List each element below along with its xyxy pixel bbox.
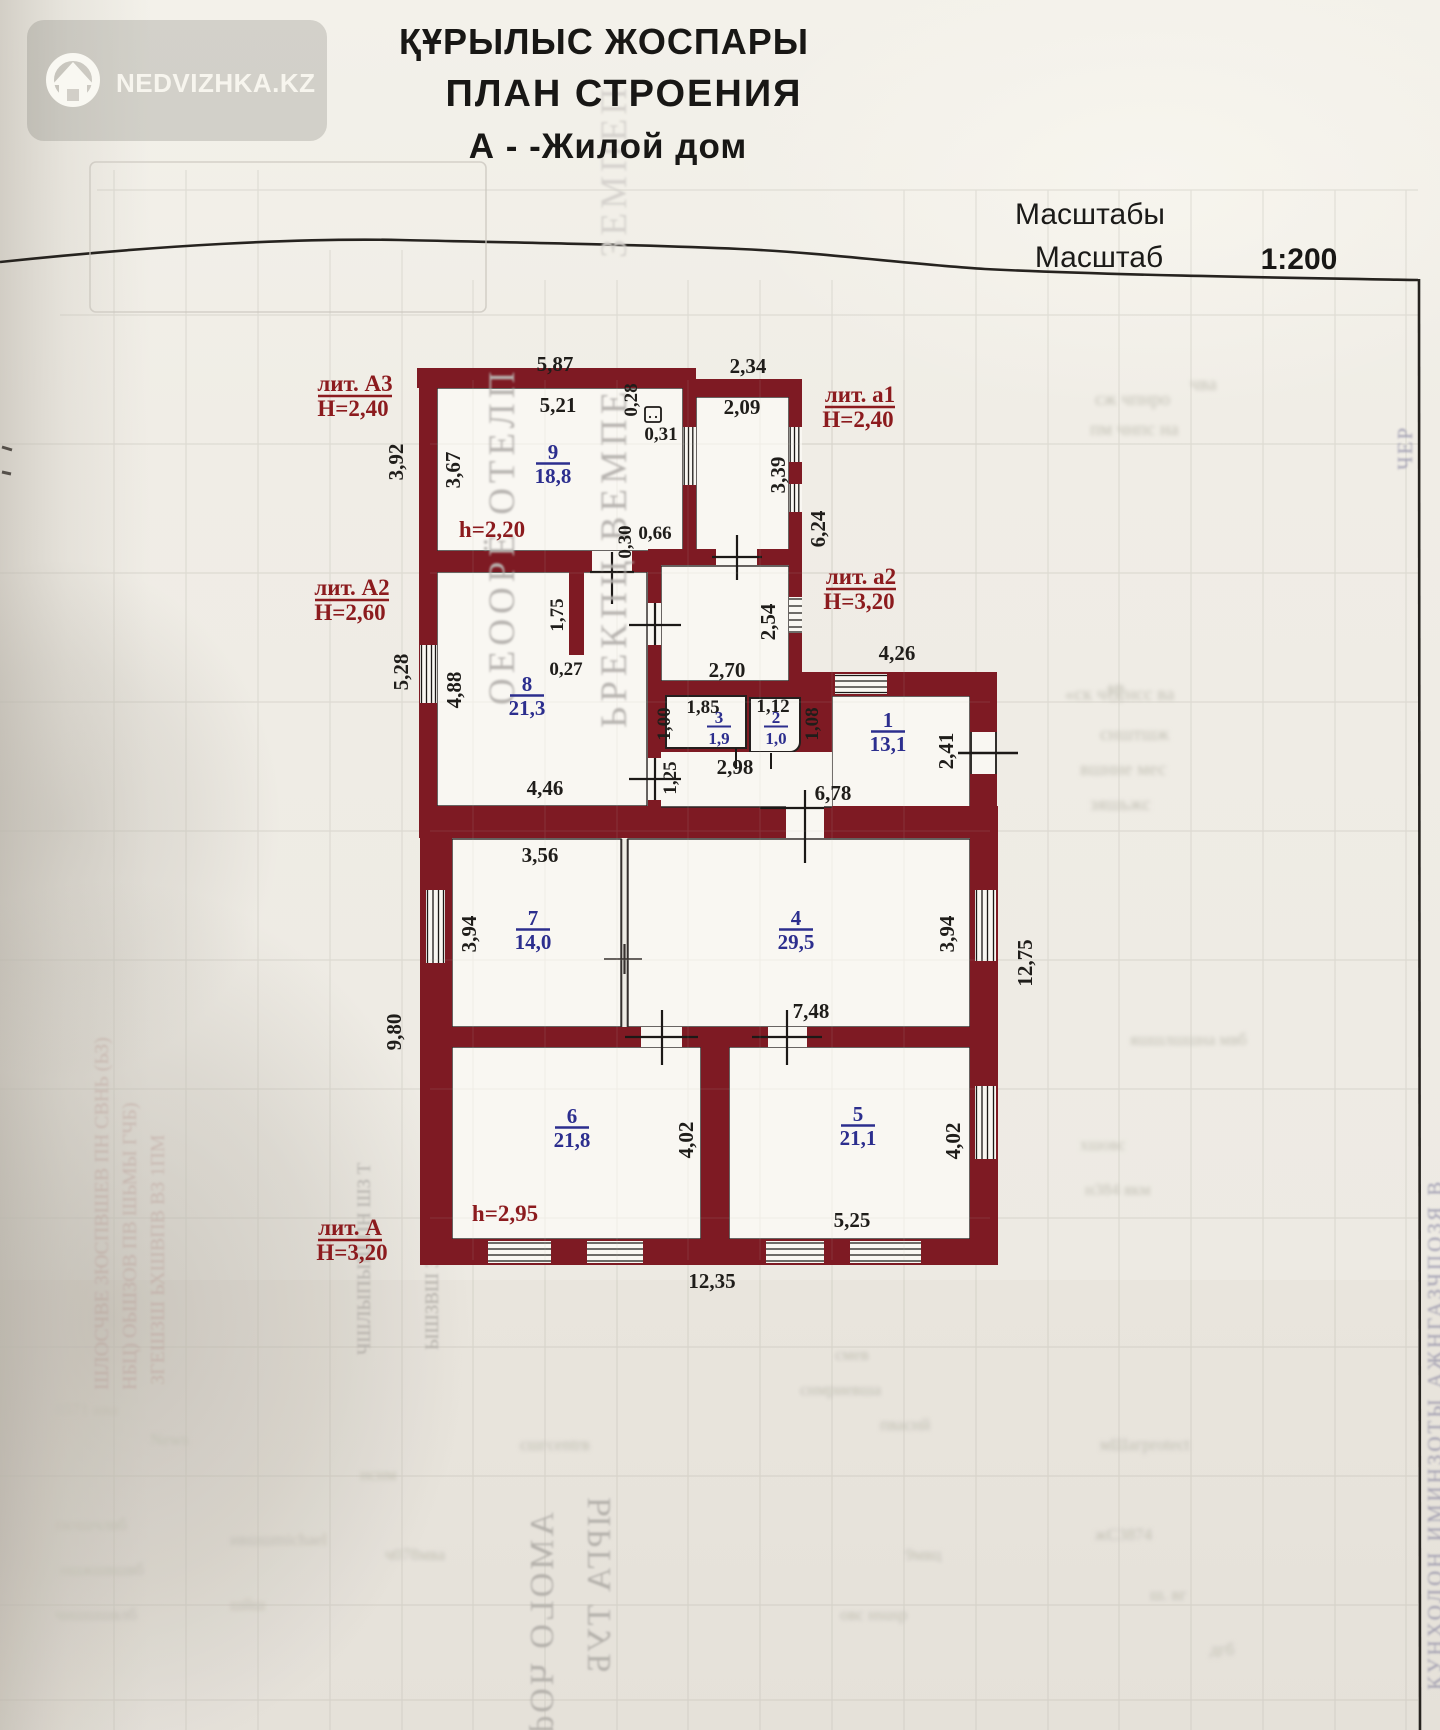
svg-text:Н=2,40: Н=2,40: [317, 396, 388, 421]
svg-text:0,28: 0,28: [621, 383, 642, 416]
svg-text:чва: чва: [1190, 374, 1217, 395]
svg-text:3,94: 3,94: [935, 915, 959, 952]
svg-text:1,25: 1,25: [660, 761, 681, 794]
svg-text:1,75: 1,75: [547, 598, 568, 631]
svg-text:6,78: 6,78: [815, 781, 852, 805]
svg-text:7: 7: [528, 906, 539, 930]
svg-text:Н=2,60: Н=2,60: [314, 600, 385, 625]
svg-text:лит. А3: лит. А3: [317, 371, 392, 396]
svg-text:9,80: 9,80: [382, 1014, 406, 1051]
svg-text:2,34: 2,34: [730, 354, 767, 378]
svg-text:Н=3,20: Н=3,20: [316, 1240, 387, 1265]
svg-text:«ск ч榜нсс ва: «ск ч榜нсс ва: [1065, 683, 1175, 705]
svg-text:1,00: 1,00: [654, 707, 675, 740]
svg-text:3,92: 3,92: [384, 444, 408, 481]
svg-text:2,41: 2,41: [934, 733, 958, 770]
svg-text:зяшьжс: зяшьжс: [1090, 794, 1151, 815]
svg-text:ЧЕР: ЧЕР: [1393, 426, 1417, 470]
svg-text:5,21: 5,21: [540, 393, 577, 417]
svg-text:9: 9: [548, 440, 559, 464]
svg-text:7,48: 7,48: [793, 999, 830, 1023]
svg-text:пм чнпс на: пм чнпс на: [1090, 419, 1179, 440]
svg-text:лит. А: лит. А: [318, 1215, 382, 1240]
svg-text:лит. а2: лит. а2: [826, 564, 896, 589]
svg-text:h=2,20: h=2,20: [459, 517, 525, 542]
svg-text:5,87: 5,87: [537, 352, 574, 376]
svg-text:вшнне мес: вшнне мес: [1080, 759, 1166, 780]
svg-text:2,70: 2,70: [709, 658, 746, 682]
svg-text:1:200: 1:200: [1261, 243, 1338, 276]
svg-text:4: 4: [791, 906, 802, 930]
svg-text:21,3: 21,3: [509, 696, 546, 720]
svg-text:3,56: 3,56: [522, 843, 559, 867]
svg-text:3,67: 3,67: [441, 452, 465, 489]
svg-text:12,35: 12,35: [688, 1269, 735, 1293]
svg-text:4,26: 4,26: [879, 641, 916, 665]
svg-text:А - -Жилой дом: А - -Жилой дом: [469, 127, 748, 166]
svg-text:Масштаб: Масштаб: [1035, 241, 1163, 274]
svg-text:5: 5: [853, 1102, 864, 1126]
svg-text:яшшлшшна мвб: яшшлшшна мвб: [1130, 1030, 1247, 1049]
svg-text:4,02: 4,02: [674, 1122, 698, 1159]
svg-text:лит. А2: лит. А2: [314, 575, 389, 600]
svg-text:21,1: 21,1: [840, 1126, 877, 1150]
svg-text:3,94: 3,94: [457, 915, 481, 952]
svg-text:снштшж: снштшж: [1100, 724, 1170, 745]
svg-text:8: 8: [522, 672, 533, 696]
svg-text:Н=3,20: Н=3,20: [823, 589, 894, 614]
svg-text:0,66: 0,66: [638, 523, 671, 544]
svg-text:н384 якм: н384 якм: [1085, 1180, 1151, 1199]
svg-text:2,98: 2,98: [717, 755, 754, 779]
svg-text:NEDVIZHKA.KZ: NEDVIZHKA.KZ: [116, 68, 316, 98]
svg-text:2: 2: [772, 708, 781, 727]
svg-text:0,30: 0,30: [615, 525, 636, 558]
svg-text:4,88: 4,88: [442, 672, 466, 709]
svg-text:6: 6: [567, 1104, 578, 1128]
svg-text:1,0: 1,0: [765, 729, 786, 748]
svg-text:18,8: 18,8: [535, 464, 572, 488]
svg-text:Масштабы: Масштабы: [1015, 198, 1165, 231]
svg-text:12,75: 12,75: [1013, 939, 1037, 986]
svg-text:h=2,95: h=2,95: [472, 1201, 538, 1226]
svg-text:2,09: 2,09: [724, 395, 761, 419]
svg-text:5,28: 5,28: [389, 654, 413, 691]
svg-text:2,54: 2,54: [756, 603, 780, 640]
svg-text:13,1: 13,1: [870, 732, 907, 756]
svg-text:ҚҰРЫЛЫС ЖОСПАРЫ: ҚҰРЫЛЫС ЖОСПАРЫ: [399, 21, 809, 62]
svg-text:1,08: 1,08: [802, 707, 823, 740]
svg-text:5,25: 5,25: [834, 1208, 871, 1232]
svg-text:3: 3: [715, 708, 724, 727]
svg-text:Н=2,40: Н=2,40: [822, 407, 893, 432]
svg-text:6,24: 6,24: [806, 510, 830, 547]
svg-text:0,31: 0,31: [644, 424, 677, 445]
svg-text:29,5: 29,5: [778, 930, 815, 954]
svg-text:0,27: 0,27: [549, 659, 583, 680]
svg-text:3,39: 3,39: [766, 457, 790, 494]
svg-text:21,8: 21,8: [554, 1128, 591, 1152]
svg-text:1: 1: [883, 708, 894, 732]
svg-text:4,46: 4,46: [527, 776, 564, 800]
svg-text:лит. а1: лит. а1: [825, 382, 895, 407]
svg-text:1,9: 1,9: [708, 729, 729, 748]
svg-text:4,02: 4,02: [941, 1123, 965, 1160]
svg-text:хшовс: хшовс: [1080, 1135, 1126, 1154]
svg-text:ПЛАН СТРОЕНИЯ: ПЛАН СТРОЕНИЯ: [446, 73, 803, 115]
svg-text:сж чпнро: сж чпнро: [1095, 389, 1170, 410]
svg-text:14,0: 14,0: [515, 930, 552, 954]
